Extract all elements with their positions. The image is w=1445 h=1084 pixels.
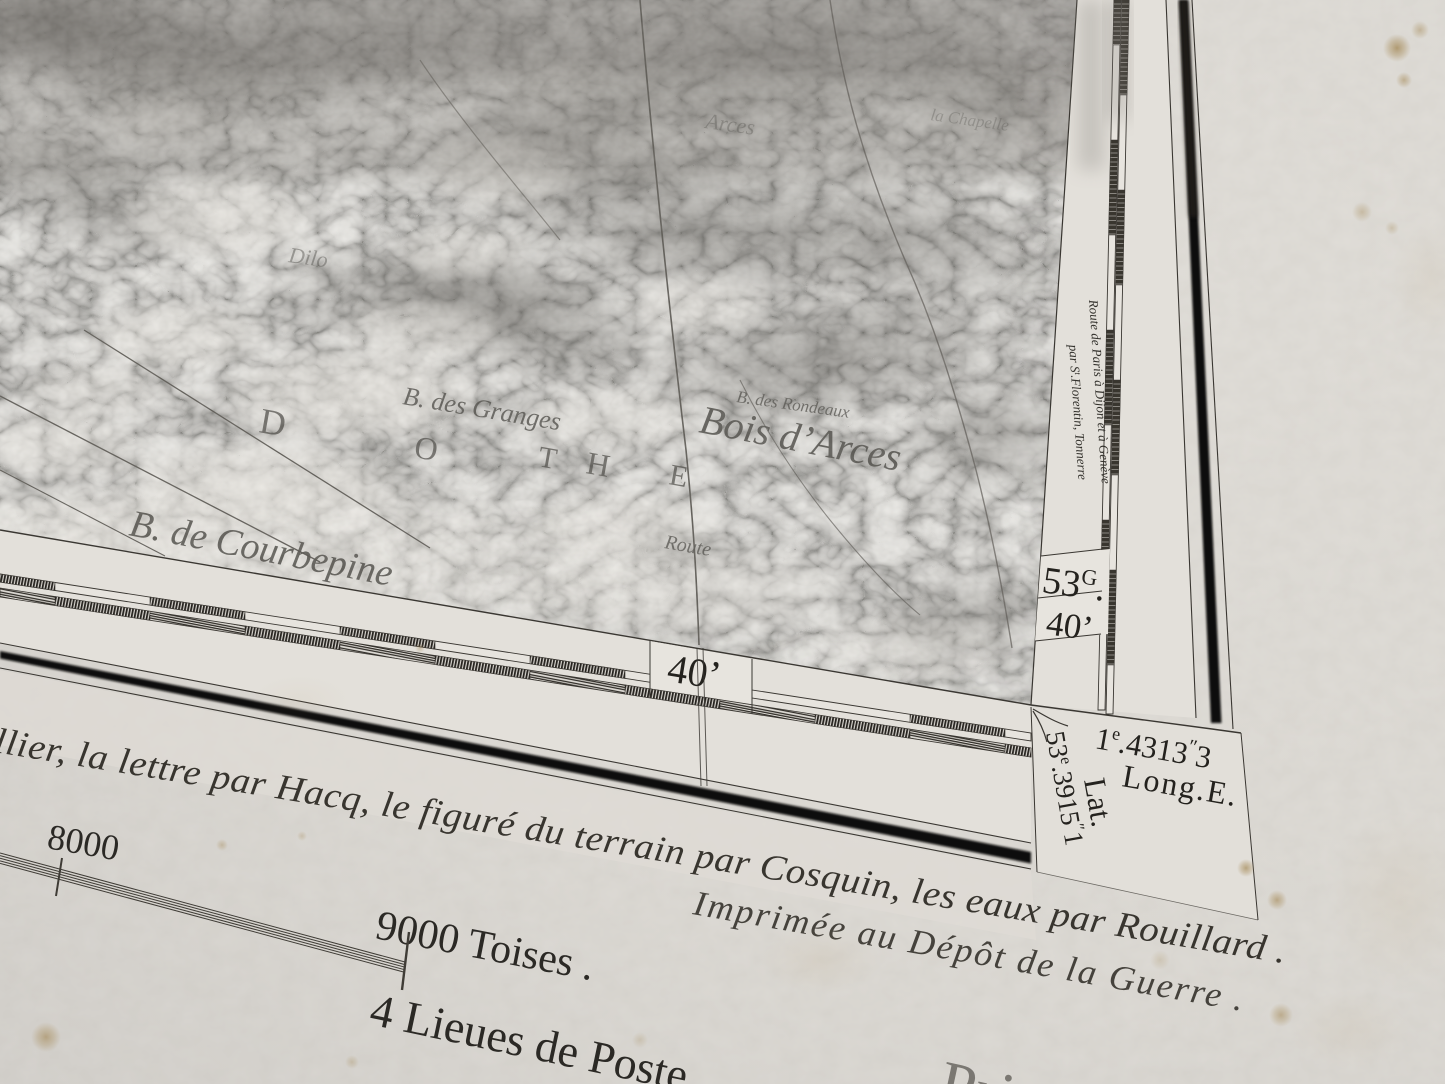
svg-text:40’: 40’ [665, 645, 725, 698]
svg-text:40’: 40’ [1044, 603, 1096, 648]
svg-text:53G.: 53G. [1040, 558, 1109, 609]
